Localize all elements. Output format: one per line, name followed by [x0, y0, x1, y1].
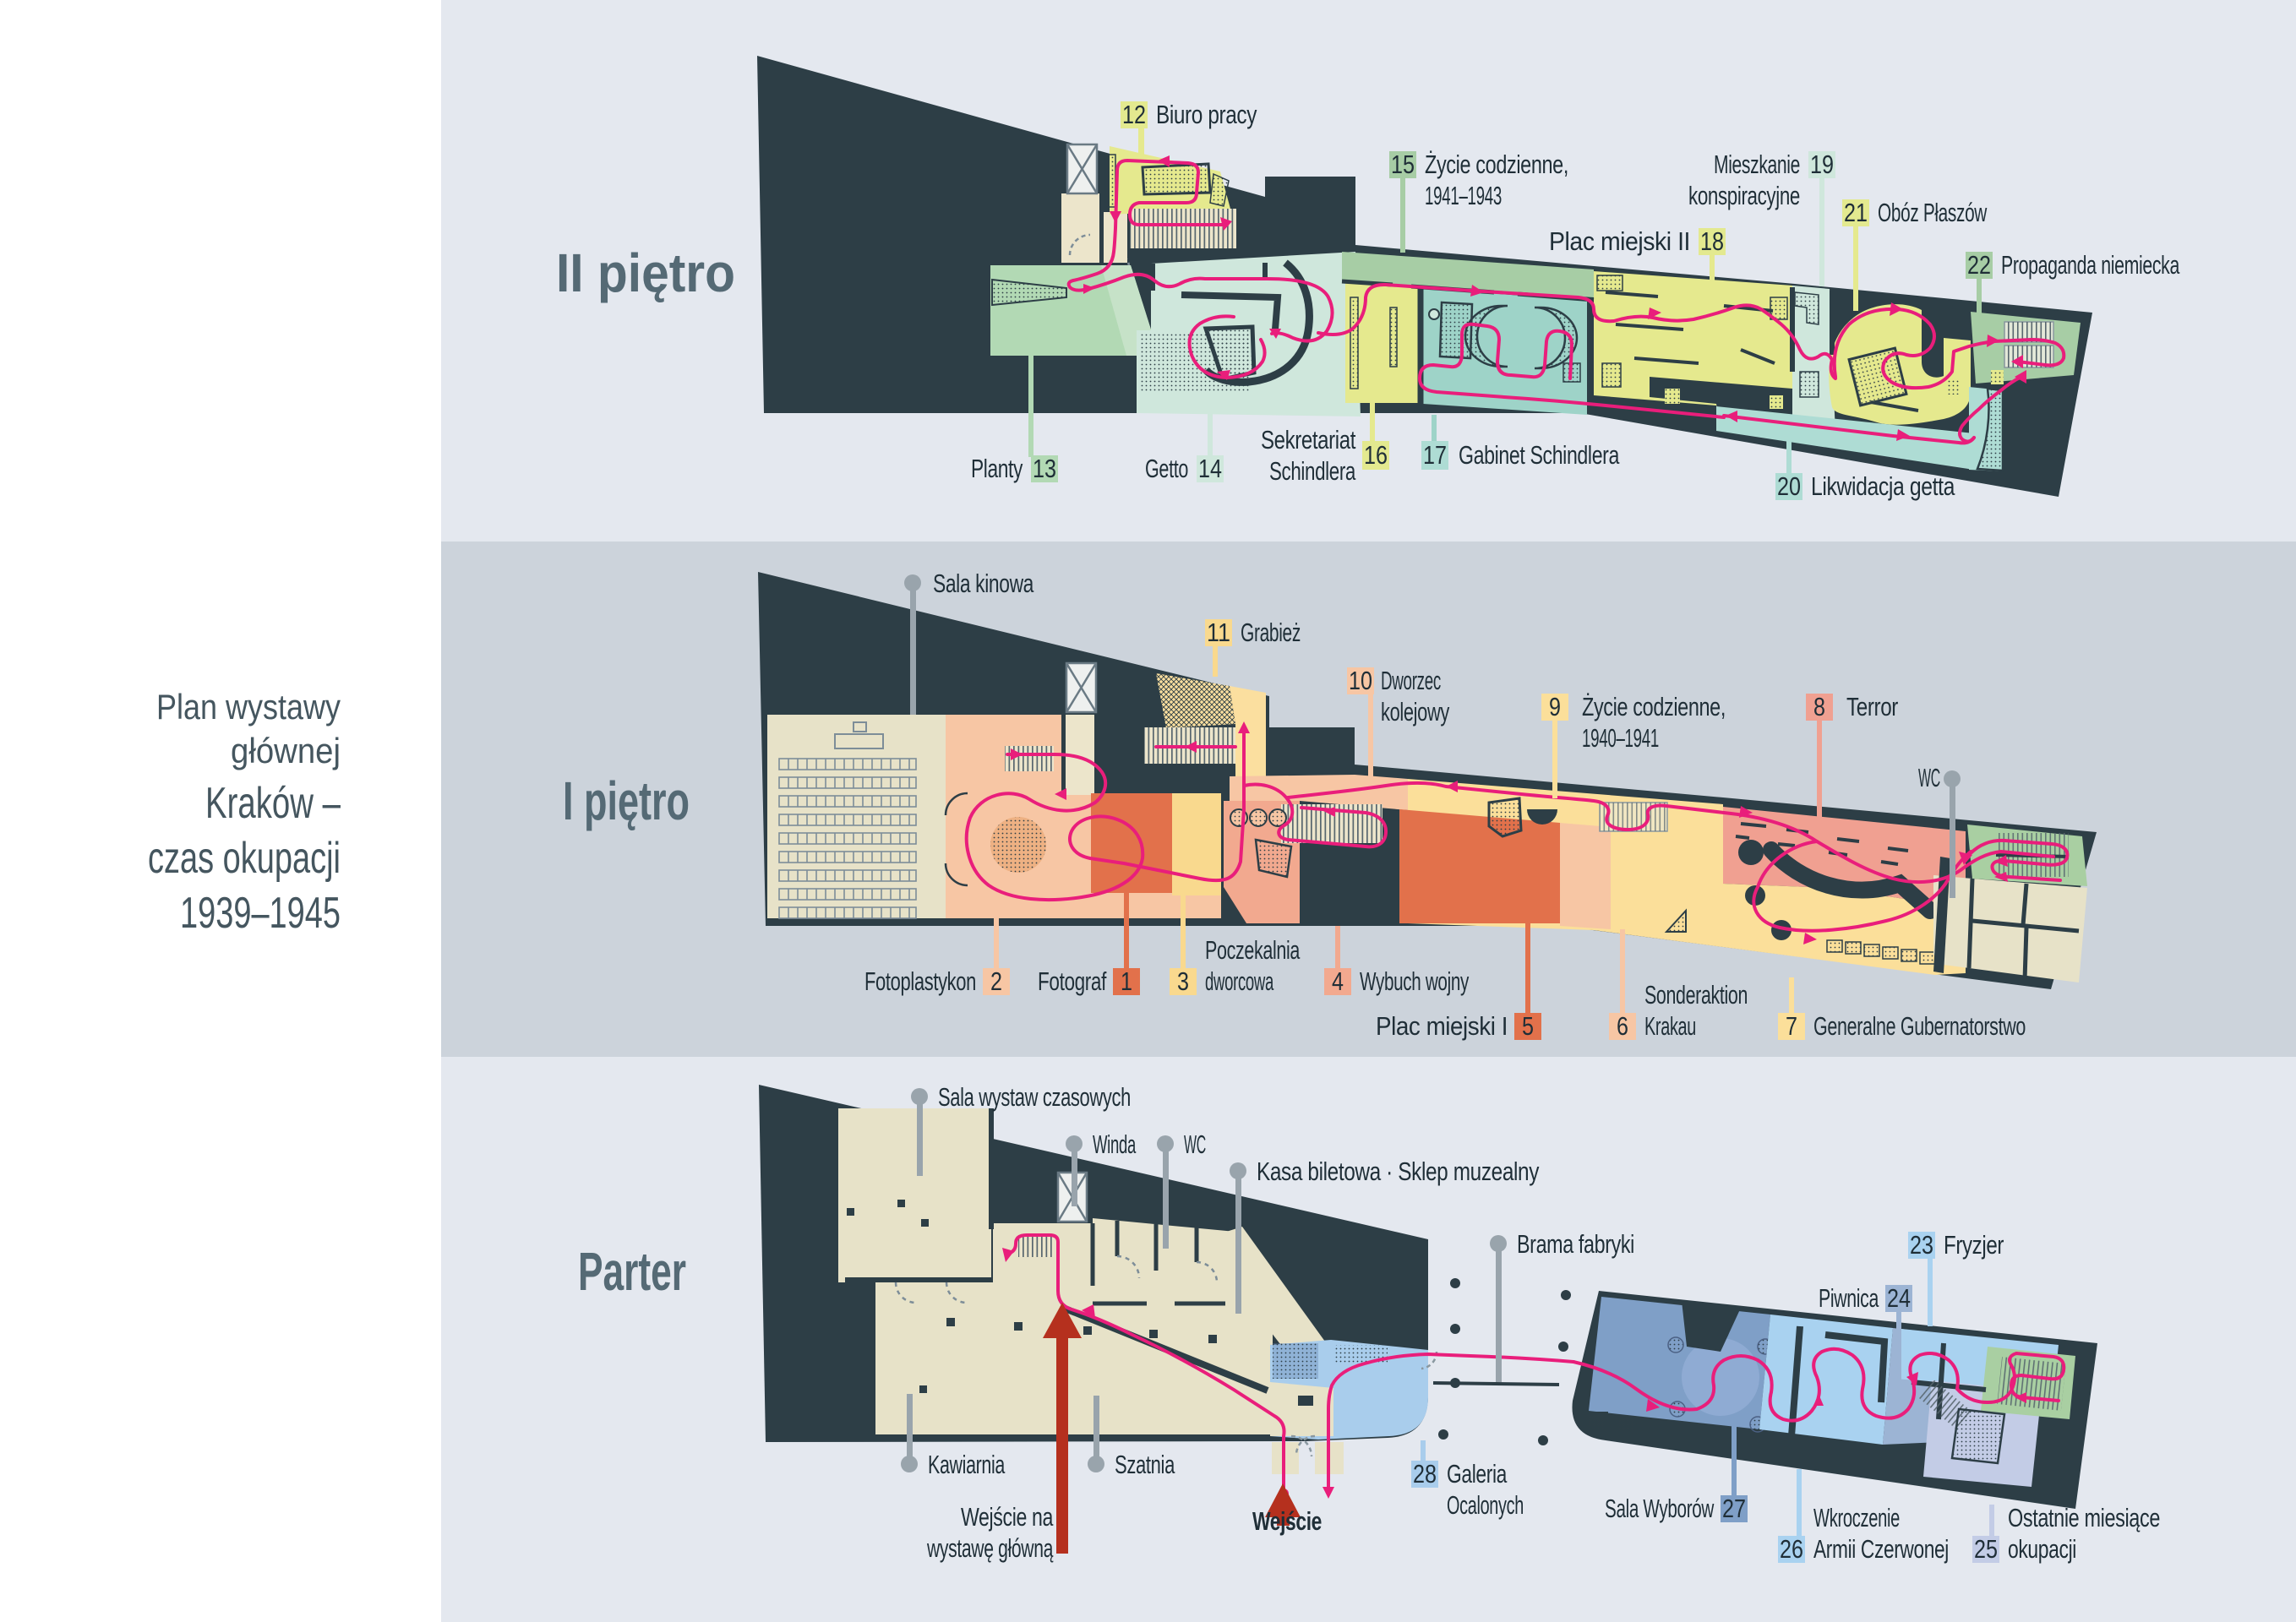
svg-text:wystawę główną: wystawę główną [926, 1533, 1054, 1563]
svg-text:Planty: Planty [971, 454, 1023, 483]
svg-text:Getto: Getto [1145, 454, 1188, 483]
svg-text:14: 14 [1198, 454, 1222, 483]
svg-text:Życie codzienne,: Życie codzienne, [1582, 692, 1726, 721]
svg-text:I piętro: I piętro [563, 770, 690, 831]
svg-text:Schindlera: Schindlera [1269, 456, 1356, 486]
svg-text:Dworzec: Dworzec [1381, 666, 1441, 695]
svg-text:8: 8 [1813, 692, 1825, 721]
svg-text:Plac miejski I: Plac miejski I [1376, 1011, 1508, 1041]
svg-text:11: 11 [1207, 618, 1230, 647]
svg-text:Brama fabryki: Brama fabryki [1517, 1229, 1634, 1259]
svg-text:II piętro: II piętro [556, 242, 735, 303]
svg-text:1940–1941: 1940–1941 [1582, 723, 1659, 753]
svg-text:Ostatnie miesiące: Ostatnie miesiące [2008, 1503, 2160, 1532]
svg-text:2: 2 [990, 966, 1002, 996]
svg-text:Poczekalnia: Poczekalnia [1205, 935, 1301, 965]
svg-text:konspiracyjne: konspiracyjne [1688, 181, 1800, 210]
svg-text:Fotograf: Fotograf [1038, 966, 1107, 996]
svg-text:Likwidacja getta: Likwidacja getta [1811, 471, 1955, 501]
svg-text:czas okupacji: czas okupacji [148, 834, 341, 883]
svg-text:Życie codzienne,: Życie codzienne, [1425, 150, 1568, 179]
svg-text:21: 21 [1844, 198, 1868, 227]
svg-text:Parter: Parter [578, 1241, 686, 1302]
svg-text:28: 28 [1413, 1459, 1437, 1489]
svg-text:Piwnica: Piwnica [1819, 1283, 1879, 1313]
svg-text:Sekretariat: Sekretariat [1261, 425, 1356, 454]
svg-text:Wejście: Wejście [1252, 1506, 1322, 1536]
svg-text:Kasa biletowa · Sklep muzealny: Kasa biletowa · Sklep muzealny [1257, 1157, 1540, 1186]
svg-text:Kawiarnia: Kawiarnia [928, 1450, 1006, 1479]
svg-text:13: 13 [1033, 454, 1056, 483]
svg-text:Sala kinowa: Sala kinowa [933, 569, 1034, 598]
svg-text:9: 9 [1549, 692, 1561, 721]
svg-text:Plan wystawy: Plan wystawy [156, 687, 341, 727]
svg-text:Galeria: Galeria [1447, 1459, 1508, 1489]
svg-text:19: 19 [1810, 150, 1834, 179]
svg-text:3: 3 [1177, 966, 1189, 996]
svg-text:23: 23 [1910, 1230, 1933, 1260]
svg-text:Propaganda niemiecka: Propaganda niemiecka [2001, 250, 2180, 280]
svg-text:Wkroczenie: Wkroczenie [1813, 1503, 1900, 1532]
svg-text:1: 1 [1121, 966, 1132, 996]
svg-text:16: 16 [1364, 440, 1388, 470]
svg-text:26: 26 [1780, 1534, 1803, 1564]
svg-text:Kraków –: Kraków – [205, 779, 341, 828]
svg-text:22: 22 [1967, 250, 1991, 280]
svg-text:4: 4 [1332, 966, 1344, 996]
svg-text:Fotoplastykon: Fotoplastykon [864, 966, 976, 996]
svg-text:20: 20 [1777, 471, 1801, 501]
svg-text:Ocalonych: Ocalonych [1447, 1490, 1524, 1520]
svg-text:WC: WC [1918, 763, 1940, 792]
svg-text:Mieszkanie: Mieszkanie [1714, 150, 1800, 179]
svg-text:Sala Wyborów: Sala Wyborów [1605, 1494, 1715, 1523]
svg-text:Gabinet Schindlera: Gabinet Schindlera [1459, 440, 1620, 470]
svg-text:dworcowa: dworcowa [1205, 966, 1274, 996]
svg-text:5: 5 [1522, 1011, 1534, 1041]
svg-text:25: 25 [1974, 1534, 1998, 1564]
svg-text:Generalne Gubernatorstwo: Generalne Gubernatorstwo [1813, 1011, 2026, 1041]
svg-text:Grabież: Grabież [1241, 618, 1301, 647]
svg-text:Krakau: Krakau [1644, 1011, 1696, 1041]
svg-text:Plac miejski II: Plac miejski II [1549, 226, 1690, 256]
svg-text:6: 6 [1617, 1011, 1628, 1041]
svg-text:głównej: głównej [231, 731, 341, 770]
svg-text:1941–1943: 1941–1943 [1425, 181, 1502, 210]
svg-text:15: 15 [1391, 150, 1415, 179]
svg-text:Sonderaktion: Sonderaktion [1644, 980, 1748, 1010]
svg-text:Armii Czerwonej: Armii Czerwonej [1813, 1534, 1949, 1564]
svg-text:Fryzjer: Fryzjer [1944, 1230, 2004, 1260]
svg-text:Wybuch wojny: Wybuch wojny [1360, 966, 1470, 996]
svg-text:Biuro pracy: Biuro pracy [1156, 100, 1257, 129]
svg-text:Sala wystaw czasowych: Sala wystaw czasowych [938, 1082, 1131, 1112]
svg-text:27: 27 [1722, 1494, 1746, 1523]
svg-text:WC: WC [1184, 1129, 1206, 1159]
svg-text:10: 10 [1349, 666, 1372, 695]
svg-text:Obóz Płaszów: Obóz Płaszów [1878, 198, 1988, 227]
svg-text:kolejowy: kolejowy [1381, 697, 1450, 727]
svg-text:Wejście na: Wejście na [961, 1502, 1054, 1532]
svg-text:24: 24 [1887, 1283, 1911, 1313]
svg-text:17: 17 [1423, 440, 1447, 470]
svg-text:7: 7 [1786, 1011, 1797, 1041]
svg-text:Terror: Terror [1846, 692, 1898, 721]
svg-text:Szatnia: Szatnia [1115, 1450, 1175, 1479]
svg-text:1939–1945: 1939–1945 [180, 889, 341, 938]
svg-text:18: 18 [1700, 226, 1724, 256]
svg-text:okupacji: okupacji [2008, 1534, 2076, 1564]
svg-text:12: 12 [1122, 100, 1146, 129]
svg-text:Winda: Winda [1093, 1129, 1137, 1159]
